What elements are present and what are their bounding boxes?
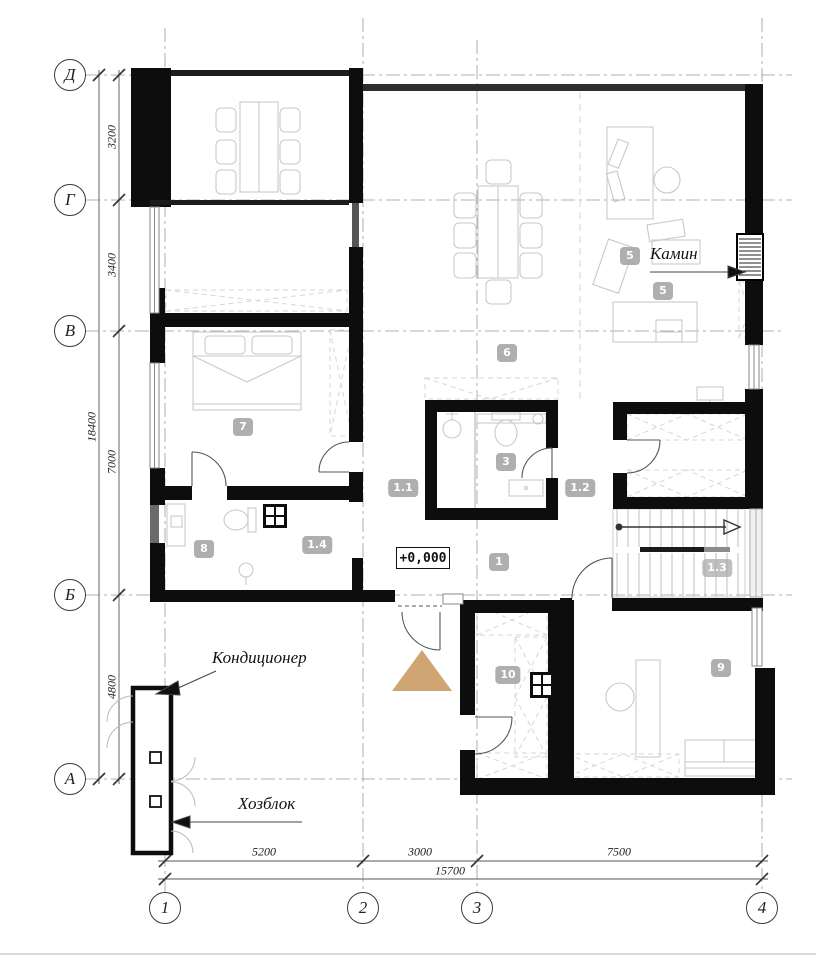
room-badge-1: 1: [489, 553, 509, 571]
dim-bottom-total: 15700: [435, 864, 465, 879]
axis-row-В: В: [54, 315, 86, 347]
washer-icon-2: [530, 672, 554, 698]
glazed-panel-left: [150, 505, 159, 543]
dim-left-total: 18400: [85, 412, 100, 442]
room-badge-10: 10: [495, 666, 520, 684]
axis-row-Б: Б: [54, 579, 86, 611]
axis-row-Г: Г: [54, 184, 86, 216]
room-badge-7: 7: [233, 418, 253, 436]
air-conditioner-label: Кондиционер: [212, 648, 307, 668]
room-badge-5: 5: [620, 247, 640, 265]
room-badge-1.4: 1.4: [302, 536, 332, 554]
dim-left-4800: 4800: [105, 675, 120, 699]
glazed-panel: [352, 203, 359, 247]
dim-bottom-7500: 7500: [607, 845, 631, 860]
dim-left-3200: 3200: [105, 125, 120, 149]
axis-col-3: 3: [461, 892, 493, 924]
room-badge-3: 3: [496, 453, 516, 471]
fireplace-label: Камин: [650, 244, 698, 264]
walls: [131, 68, 775, 795]
room-badge-5: 5: [653, 282, 673, 300]
room-badge-1.3: 1.3: [702, 559, 732, 577]
axis-col-1: 1: [149, 892, 181, 924]
axis-col-4: 4: [746, 892, 778, 924]
grid-lines: [85, 18, 792, 892]
washer-icon-1: [263, 504, 287, 528]
stairs: [613, 509, 745, 597]
dim-bottom-5200: 5200: [252, 845, 276, 860]
stair-direction-arrow: [616, 520, 740, 534]
dim-bottom-3000: 3000: [408, 845, 432, 860]
floor-plan: Камин Кондиционер Хозблок +0,000 const d…: [0, 0, 816, 960]
room-badge-1.2: 1.2: [565, 479, 595, 497]
level-mark: +0,000: [396, 547, 450, 569]
axis-col-2: 2: [347, 892, 379, 924]
dim-left-7000: 7000: [105, 450, 120, 474]
axis-row-Д: Д: [54, 59, 86, 91]
room-badge-1.1: 1.1: [388, 479, 418, 497]
utility-block: [107, 688, 195, 853]
entry-arrow: [392, 650, 452, 691]
axis-row-А: А: [54, 763, 86, 795]
room-badge-8: 8: [194, 540, 214, 558]
room-badge-9: 9: [711, 659, 731, 677]
stair-handrail: [640, 547, 704, 552]
room-badge-6: 6: [497, 344, 517, 362]
page-edge-line: [0, 953, 816, 955]
dim-left-3400: 3400: [105, 253, 120, 277]
utility-block-label: Хозблок: [238, 794, 295, 814]
